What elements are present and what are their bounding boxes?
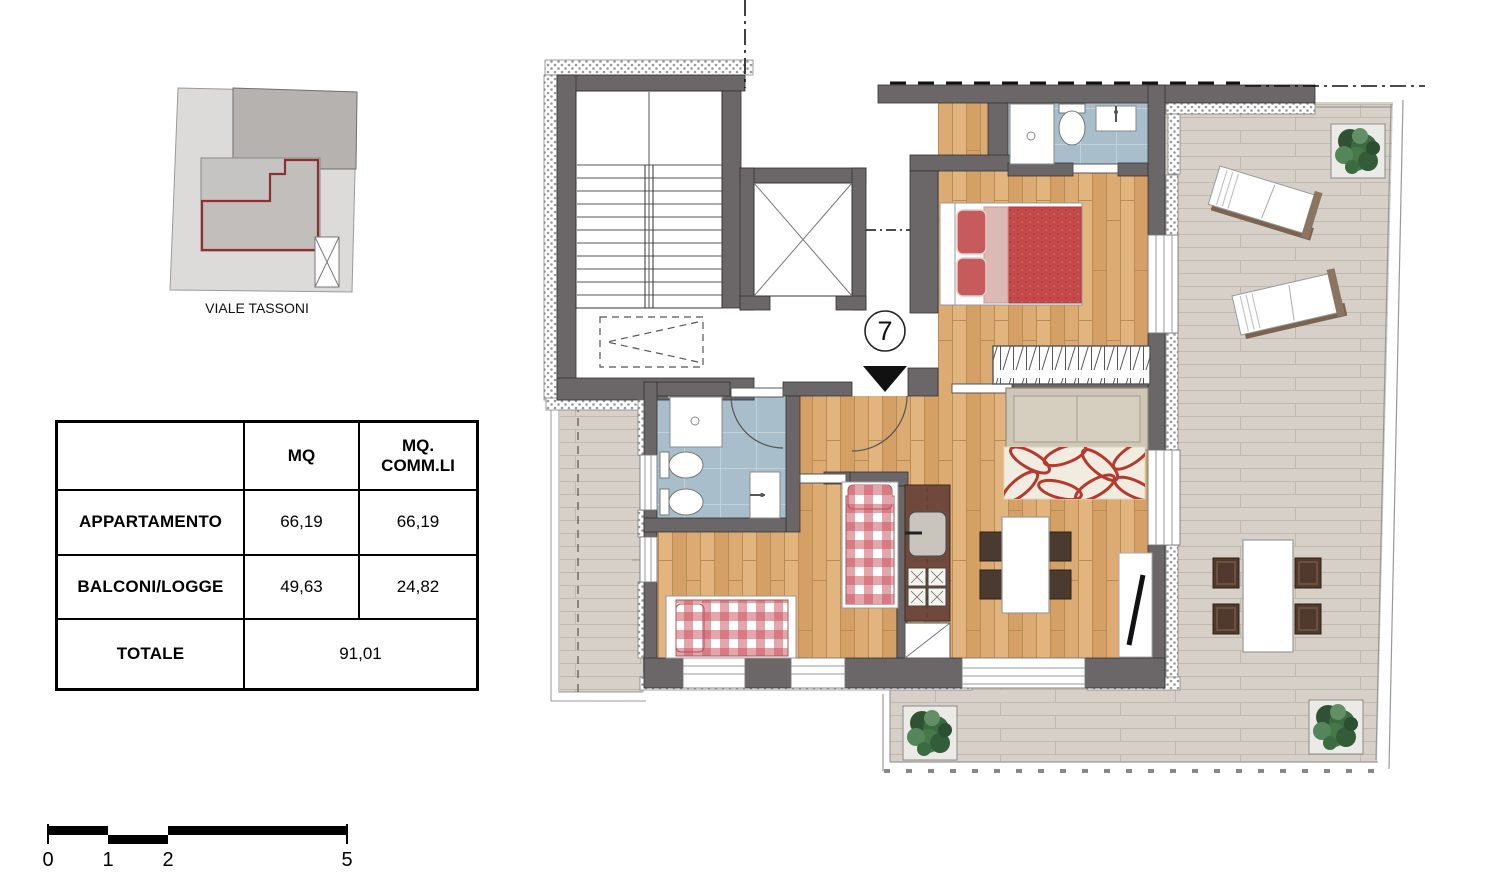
row-mq-value: 66,19: [244, 490, 359, 555]
table-row-totale: TOTALE 91,01: [57, 619, 478, 690]
elevator: [740, 168, 866, 310]
table-row-balconi: BALCONI/LOGGE 49,63 24,82: [57, 555, 478, 619]
scale-label-1: 1: [102, 849, 113, 871]
table-row-appartamento: APPARTAMENTO 66,19 66,19: [57, 490, 478, 555]
bathroom1-door: [1073, 164, 1118, 173]
rug: [998, 436, 1158, 507]
sofa: [1006, 388, 1148, 450]
dining-table: [1002, 517, 1049, 613]
plant-bottom-right: [1309, 700, 1363, 754]
row-mqcommli-value: 24,82: [359, 555, 478, 619]
plant-top: [1331, 124, 1385, 178]
sink1: [1096, 106, 1136, 131]
bidet: [660, 489, 703, 515]
shower1: [1010, 104, 1054, 164]
floor-plan-sheet: VIALE TASSONI: [0, 0, 1500, 878]
bathroom2-door: [731, 388, 783, 397]
stairwell: [544, 60, 866, 410]
shower2: [670, 397, 722, 447]
bedroom1-door: [952, 384, 1012, 393]
table-header-row: MQ MQ. COMM.LI: [57, 422, 478, 490]
scale-label-0: 0: [42, 849, 53, 871]
entrance-arrow-icon: [863, 366, 907, 392]
balcony-floor: [560, 402, 642, 692]
kitchen: [905, 485, 950, 658]
site-building-dark: [233, 88, 357, 169]
toilet2: [660, 452, 703, 478]
row-mq-value: 49,63: [244, 555, 359, 619]
total-value: 91,01: [244, 619, 478, 690]
scale-label-5: 5: [341, 849, 352, 871]
toilet1: [1059, 104, 1085, 145]
site-plan-inset: VIALE TASSONI: [170, 88, 357, 316]
header-mq: MQ: [244, 422, 359, 490]
row-mqcommli-value: 66,19: [359, 490, 478, 555]
kitchen-sink: [905, 512, 946, 556]
bedroom2-door: [800, 474, 846, 483]
single-bed-horizontal: [666, 596, 796, 658]
row-label: APPARTAMENTO: [57, 490, 245, 555]
header-mq-commli: MQ. COMM.LI: [359, 422, 478, 490]
sink2: [750, 472, 780, 518]
wardrobe: [993, 346, 1150, 384]
outdoor-table: [1243, 540, 1293, 652]
area-summary-table: MQ MQ. COMM.LI APPARTAMENTO 66,19 66,19 …: [55, 420, 479, 691]
stair-skylight-dashed: [600, 317, 703, 367]
scale-label-2: 2: [162, 849, 173, 871]
sideboard: [1119, 553, 1152, 657]
header-empty-cell: [57, 422, 245, 490]
unit-marker: 7: [863, 311, 907, 392]
plant-bottom-left: [903, 706, 957, 760]
unit-number-label: 7: [877, 316, 892, 346]
kitchen-cabinet: [905, 623, 950, 658]
single-bed-vertical: [842, 482, 898, 608]
street-name-label: VIALE TASSONI: [205, 300, 309, 316]
total-label: TOTALE: [57, 619, 245, 690]
stair-treads: [576, 91, 722, 308]
scale-bar: 0 1 2 5: [42, 824, 352, 871]
double-bed: [940, 203, 1082, 305]
row-label: BALCONI/LOGGE: [57, 555, 245, 619]
site-shaft-box: [315, 237, 339, 287]
